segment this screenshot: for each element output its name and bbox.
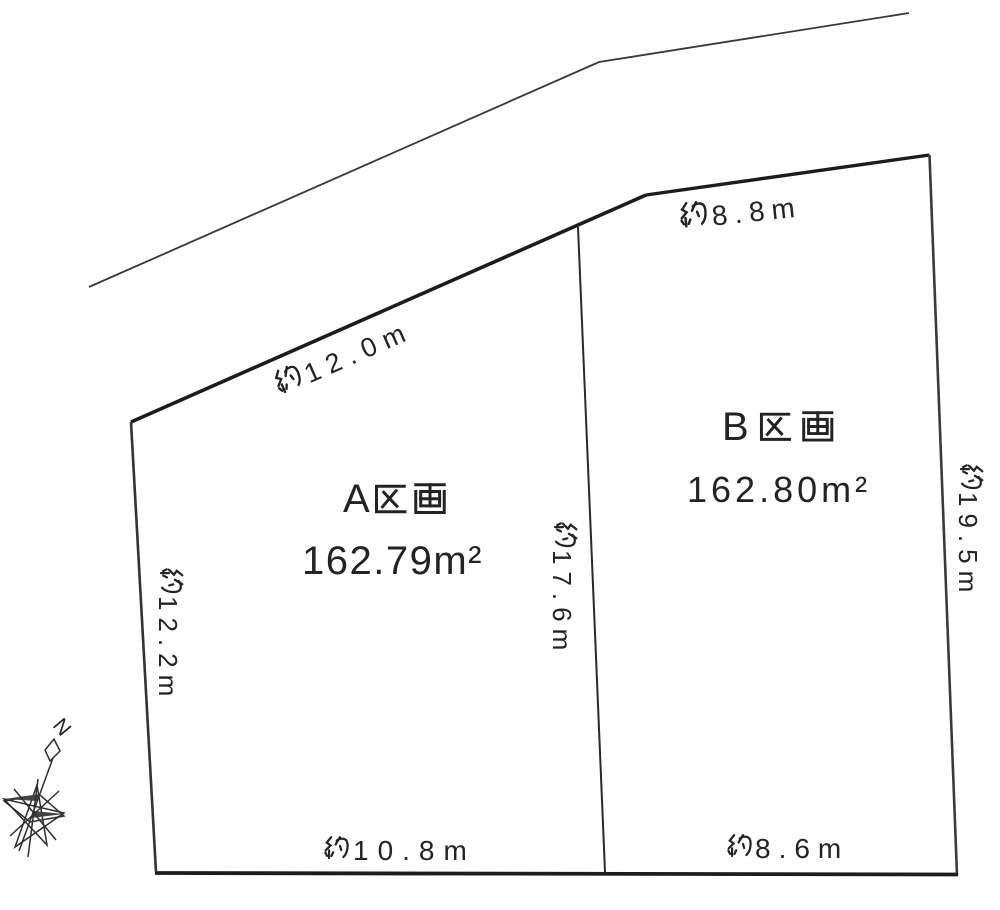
svg-text:N: N [48, 714, 75, 740]
svg-text:12.0m: 12.0m [300, 315, 417, 389]
svg-text:10.8m: 10.8m [353, 835, 476, 866]
svg-text:19.5m: 19.5m [953, 492, 983, 599]
svg-text:17.6m: 17.6m [547, 550, 577, 657]
svg-text:A: A [343, 477, 370, 521]
svg-text:162.79m²: 162.79m² [302, 539, 483, 583]
svg-text:B: B [722, 405, 749, 449]
svg-text:8.6m: 8.6m [755, 833, 849, 864]
svg-text:162.80m²: 162.80m² [687, 469, 871, 510]
svg-text:8.8m: 8.8m [710, 191, 803, 231]
svg-text:12.2m: 12.2m [153, 596, 183, 703]
